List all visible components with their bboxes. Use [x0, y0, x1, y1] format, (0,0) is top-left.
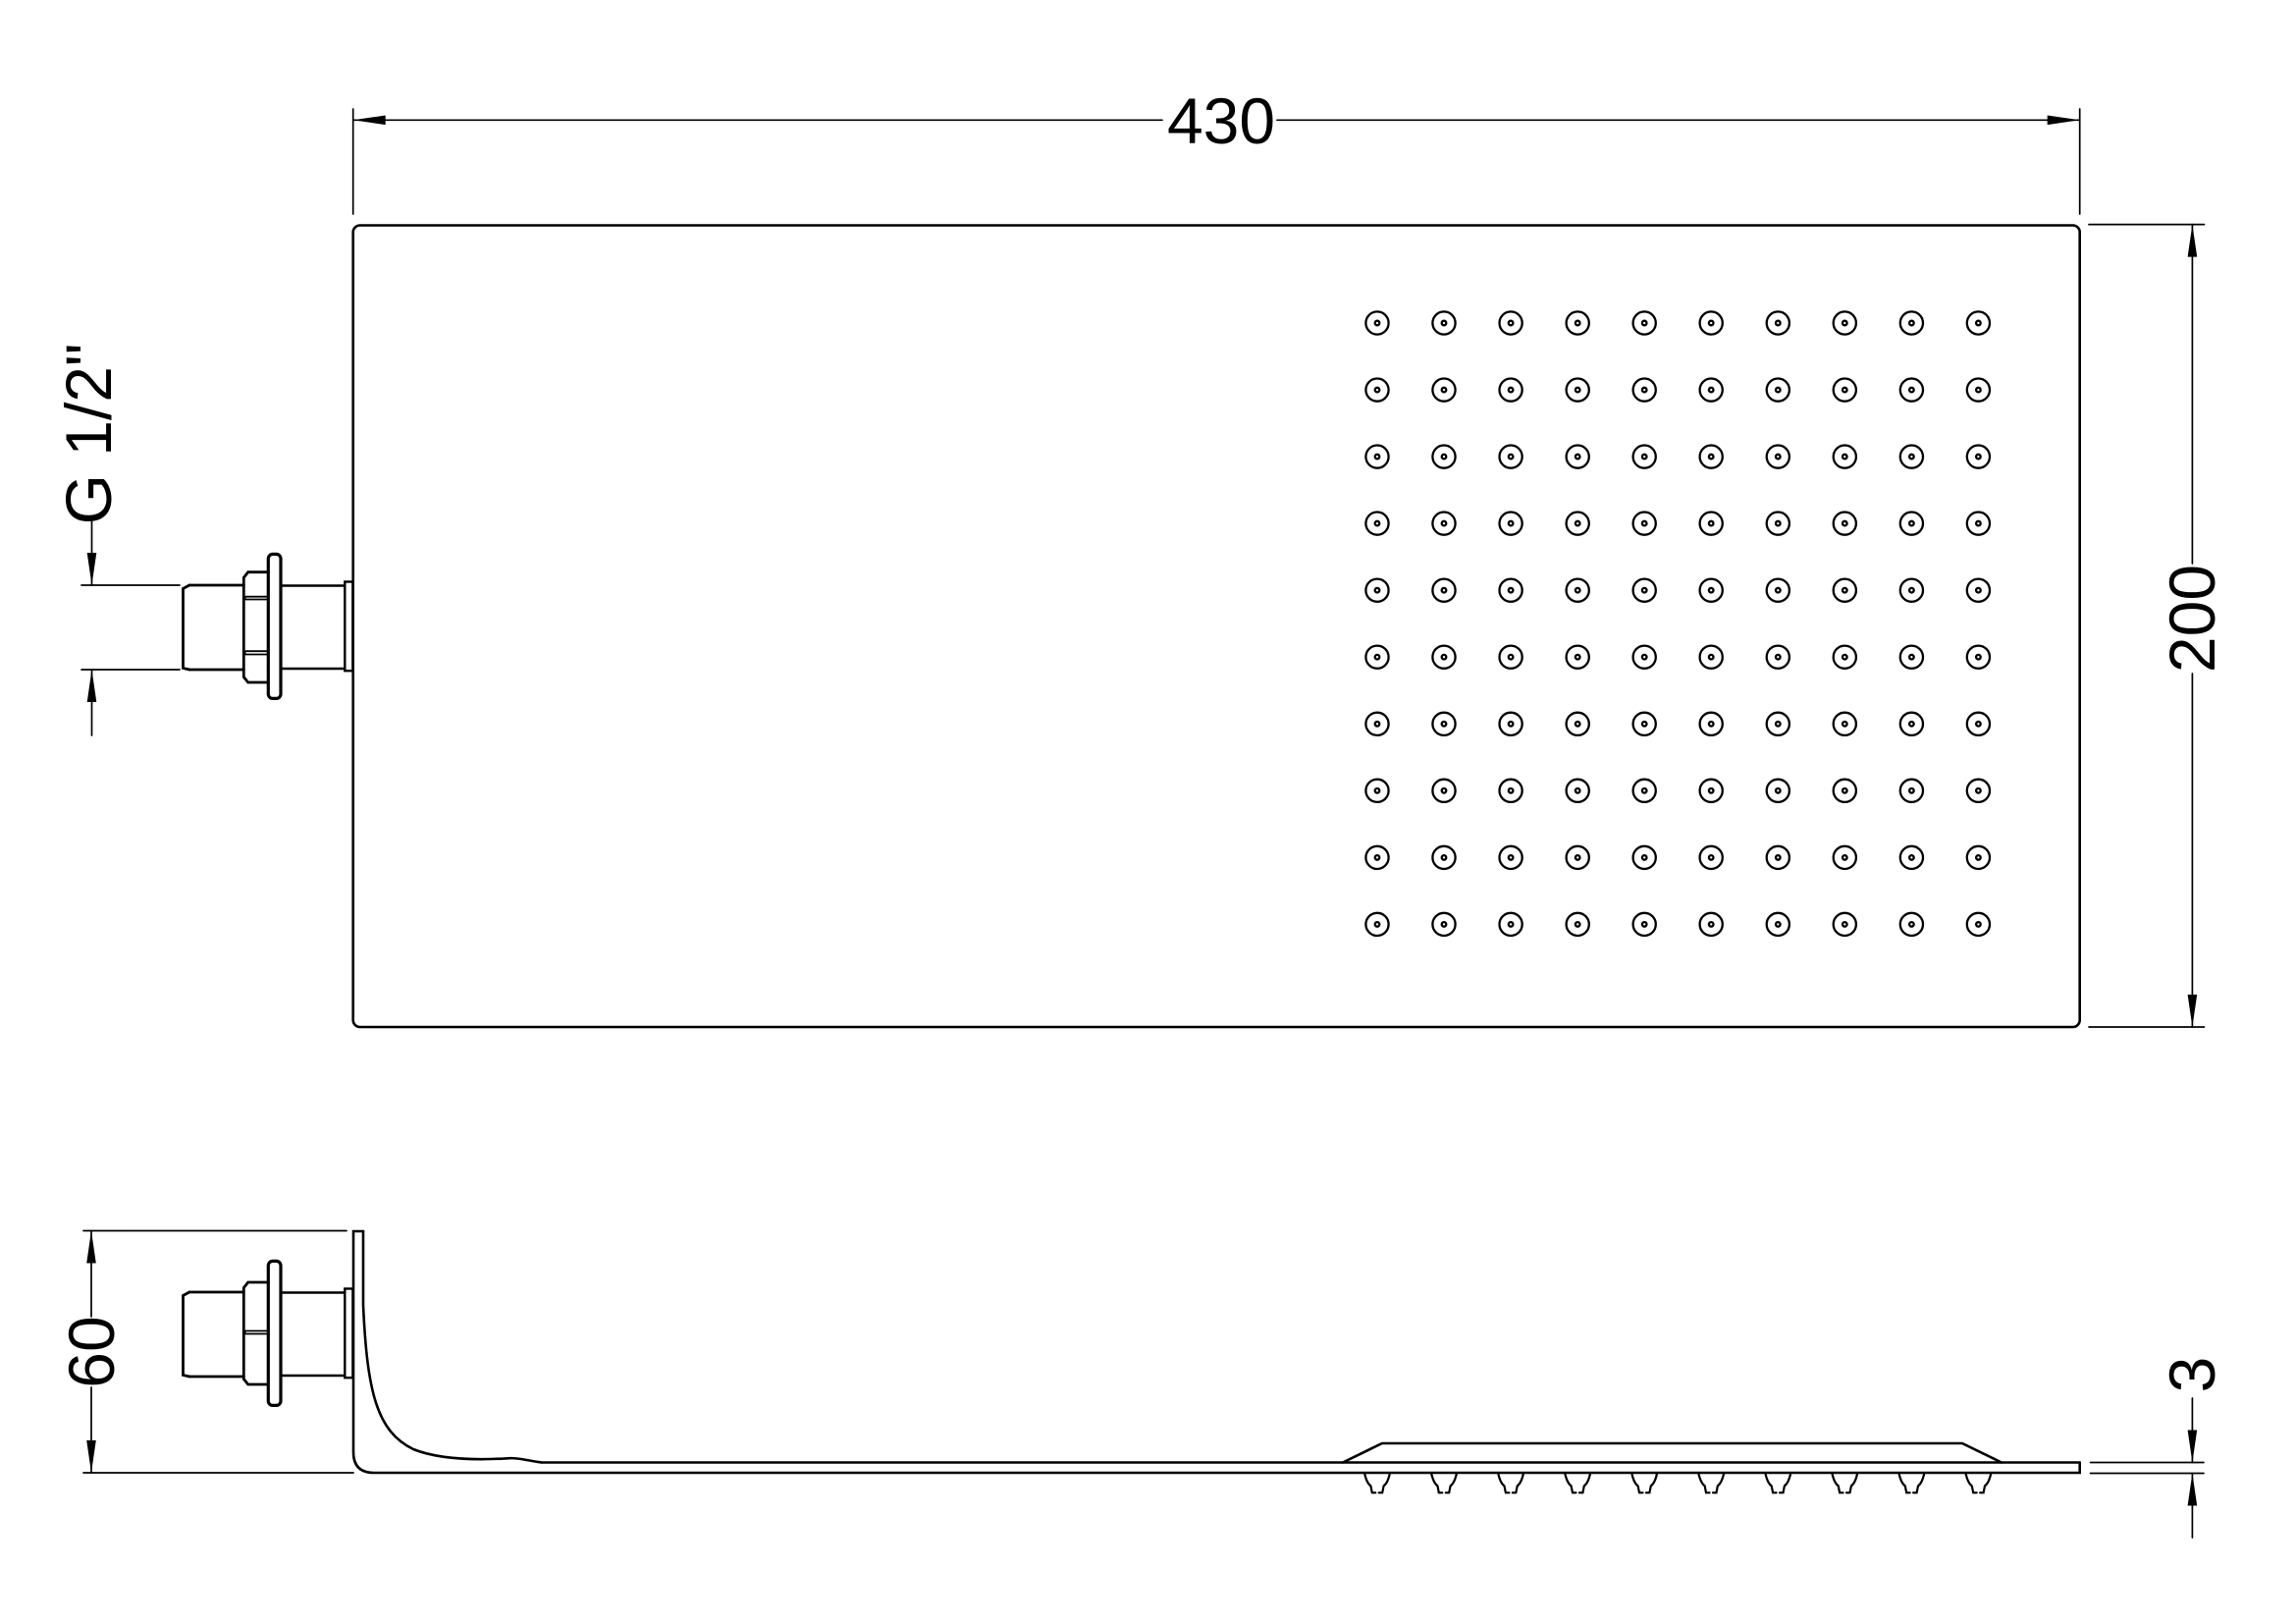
- svg-text:G 1/2": G 1/2": [52, 344, 125, 525]
- svg-text:60: 60: [55, 1316, 128, 1387]
- svg-text:430: 430: [1167, 84, 1275, 157]
- svg-text:3: 3: [2156, 1357, 2228, 1393]
- svg-text:200: 200: [2156, 565, 2228, 673]
